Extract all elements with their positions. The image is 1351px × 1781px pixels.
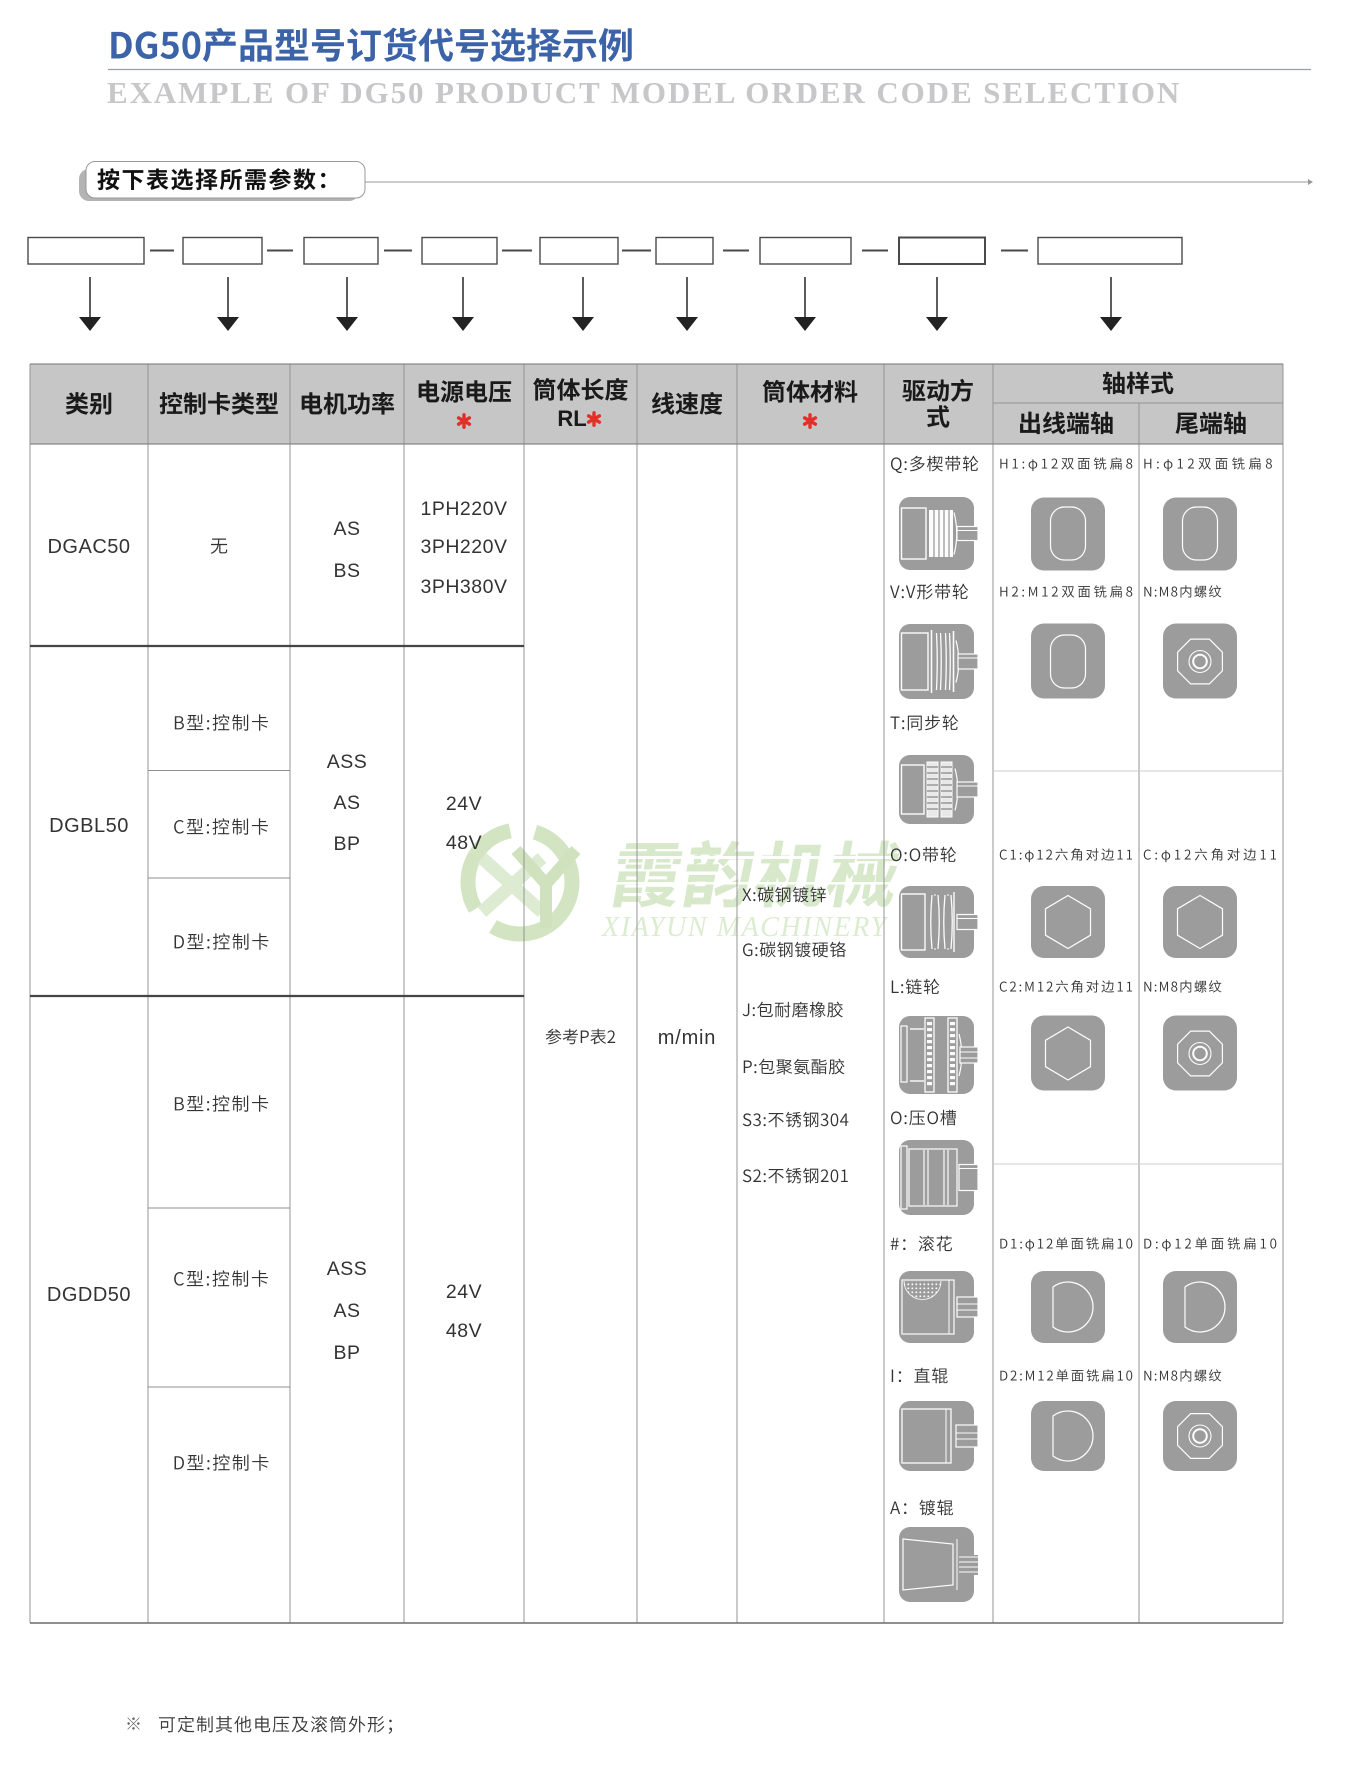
svg-text:AS: AS	[333, 1300, 360, 1322]
svg-text:24V: 24V	[446, 793, 482, 815]
svg-text:3PH380V: 3PH380V	[421, 576, 508, 598]
svg-text:ASS: ASS	[327, 751, 368, 773]
svg-text:48V: 48V	[446, 832, 482, 854]
svg-text:3PH220V: 3PH220V	[421, 536, 508, 558]
svg-text:EXAMPLE OF DG50 PRODUCT MODEL: EXAMPLE OF DG50 PRODUCT MODEL ORDER CODE…	[107, 75, 1181, 110]
svg-text:m/min: m/min	[658, 1027, 716, 1049]
svg-text:DGAC50: DGAC50	[47, 536, 130, 558]
svg-text:AS: AS	[333, 518, 360, 540]
svg-text:BP: BP	[333, 1342, 360, 1364]
svg-text:BP: BP	[333, 833, 360, 855]
svg-text:24V: 24V	[446, 1281, 482, 1303]
svg-text:XIAYUN MACHINERY: XIAYUN MACHINERY	[601, 912, 889, 943]
svg-text:BS: BS	[333, 560, 360, 582]
svg-text:AS: AS	[333, 792, 360, 814]
svg-text:RL: RL	[557, 406, 586, 431]
svg-text:ASS: ASS	[327, 1258, 368, 1280]
svg-text:DGDD50: DGDD50	[47, 1284, 131, 1306]
svg-text:1PH220V: 1PH220V	[421, 498, 508, 520]
svg-text:DGBL50: DGBL50	[49, 815, 129, 837]
svg-text:48V: 48V	[446, 1320, 482, 1342]
